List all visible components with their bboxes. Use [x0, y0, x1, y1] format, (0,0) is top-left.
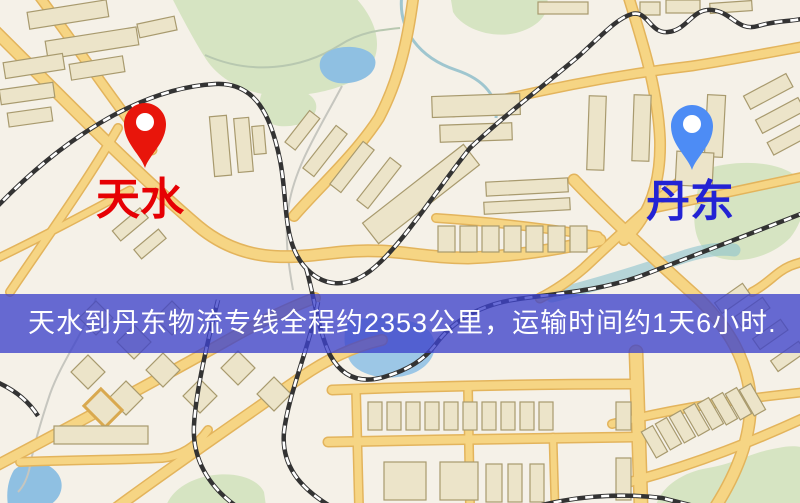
origin-city-label: 天水 [96, 175, 185, 224]
map-screenshot: 天水到丹东物流专线全程约2353公里，运输时间约1天6小时. 天水 丹东 [0, 0, 800, 503]
map-canvas[interactable]: 天水到丹东物流专线全程约2353公里，运输时间约1天6小时. 天水 丹东 [0, 0, 800, 503]
route-info-banner: 天水到丹东物流专线全程约2353公里，运输时间约1天6小时. [0, 294, 800, 353]
destination-city-label: 丹东 [646, 177, 734, 226]
banner-text: 天水到丹东物流专线全程约2353公里，运输时间约1天6小时. [28, 308, 777, 338]
